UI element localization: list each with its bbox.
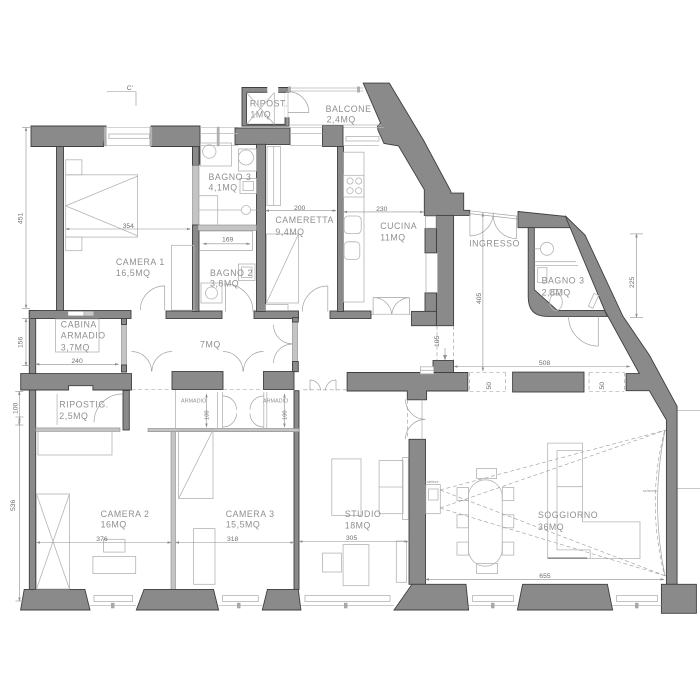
svg-text:7MQ: 7MQ <box>200 340 221 350</box>
svg-text:CAMERETTA: CAMERETTA <box>275 215 334 225</box>
svg-text:C': C' <box>127 85 133 92</box>
svg-text:318: 318 <box>227 536 239 543</box>
svg-text:2,5MQ: 2,5MQ <box>59 411 88 421</box>
svg-text:4,1MQ: 4,1MQ <box>209 182 238 192</box>
svg-text:100: 100 <box>13 402 20 414</box>
svg-text:16,5MQ: 16,5MQ <box>116 268 151 278</box>
svg-text:3,7MQ: 3,7MQ <box>61 343 90 353</box>
svg-text:200: 200 <box>294 205 306 212</box>
svg-text:schermo: schermo <box>643 489 657 493</box>
svg-text:100: 100 <box>205 410 211 420</box>
svg-text:169: 169 <box>222 237 234 244</box>
svg-text:9,4MQ: 9,4MQ <box>275 227 304 237</box>
svg-text:451: 451 <box>18 212 25 224</box>
svg-text:proiettore: proiettore <box>424 480 439 484</box>
svg-text:CAMERA 2: CAMERA 2 <box>101 509 150 519</box>
svg-text:536: 536 <box>10 499 17 511</box>
svg-text:18MQ: 18MQ <box>345 520 371 530</box>
svg-text:3,8MQ: 3,8MQ <box>210 279 239 289</box>
svg-text:1MQ: 1MQ <box>250 109 271 119</box>
svg-text:105: 105 <box>434 335 441 347</box>
svg-text:354: 354 <box>123 223 135 230</box>
svg-text:305: 305 <box>346 535 358 542</box>
svg-text:CUCINA: CUCINA <box>380 221 417 231</box>
svg-text:156: 156 <box>18 336 25 348</box>
svg-text:50: 50 <box>599 382 606 390</box>
svg-text:SOGGIORNO: SOGGIORNO <box>538 510 598 520</box>
svg-text:16MQ: 16MQ <box>101 520 127 530</box>
svg-text:240: 240 <box>71 358 83 365</box>
svg-text:230: 230 <box>376 206 388 213</box>
svg-text:ARMADIO: ARMADIO <box>61 331 106 341</box>
svg-text:2,8MQ: 2,8MQ <box>542 287 571 297</box>
svg-text:ARMADIO: ARMADIO <box>181 399 206 405</box>
svg-text:11MQ: 11MQ <box>380 233 406 243</box>
svg-text:50: 50 <box>486 382 493 390</box>
svg-text:2,4MQ: 2,4MQ <box>327 115 356 125</box>
svg-text:100: 100 <box>283 410 289 420</box>
svg-text:CABINA: CABINA <box>61 320 97 330</box>
svg-text:CAMERA 3: CAMERA 3 <box>226 509 275 519</box>
svg-text:405: 405 <box>476 292 483 304</box>
svg-text:508: 508 <box>539 360 551 367</box>
svg-text:BALCONE: BALCONE <box>326 104 372 114</box>
svg-text:15,5MQ: 15,5MQ <box>226 520 261 530</box>
svg-text:36MQ: 36MQ <box>538 522 564 532</box>
svg-text:BAGNO 3: BAGNO 3 <box>209 172 252 182</box>
svg-text:BAGNO 3: BAGNO 3 <box>542 275 585 285</box>
svg-text:655: 655 <box>539 573 551 580</box>
svg-text:225: 225 <box>629 276 636 288</box>
svg-text:BAGNO 2: BAGNO 2 <box>210 268 253 278</box>
svg-text:RIPOSTIG.: RIPOSTIG. <box>59 400 108 410</box>
svg-text:CAMERA 1: CAMERA 1 <box>116 257 165 267</box>
svg-text:INGRESSO: INGRESSO <box>469 238 520 248</box>
svg-text:376: 376 <box>96 536 108 543</box>
svg-text:STUDIO: STUDIO <box>345 509 382 519</box>
